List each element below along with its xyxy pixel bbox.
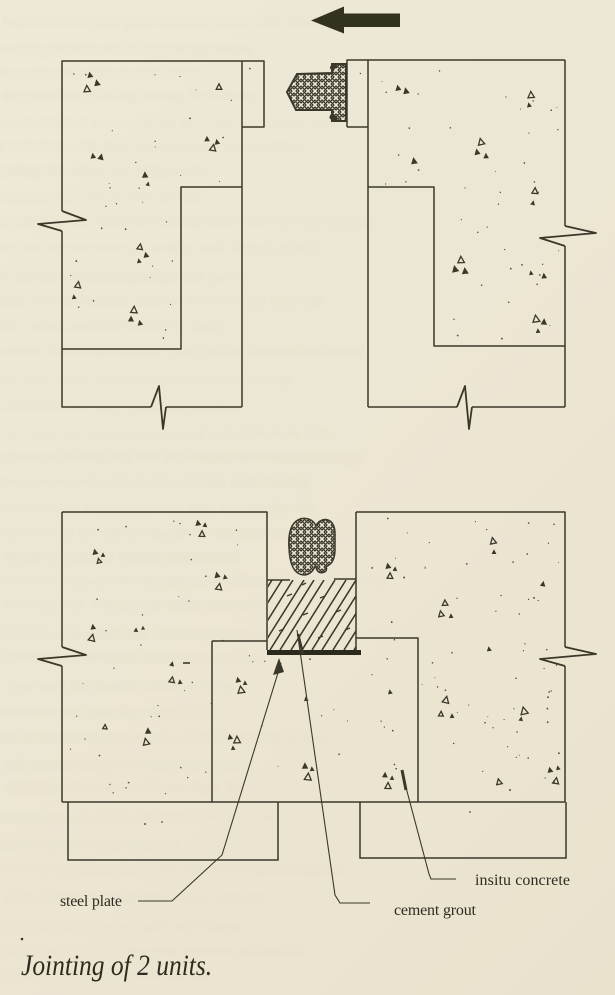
svg-text:cement grout: cement grout <box>394 902 477 919</box>
svg-text:Jointing of 2 units.: Jointing of 2 units. <box>21 949 212 982</box>
svg-text:insitu concrete: insitu concrete <box>475 872 570 889</box>
svg-text:steel plate: steel plate <box>60 893 122 910</box>
